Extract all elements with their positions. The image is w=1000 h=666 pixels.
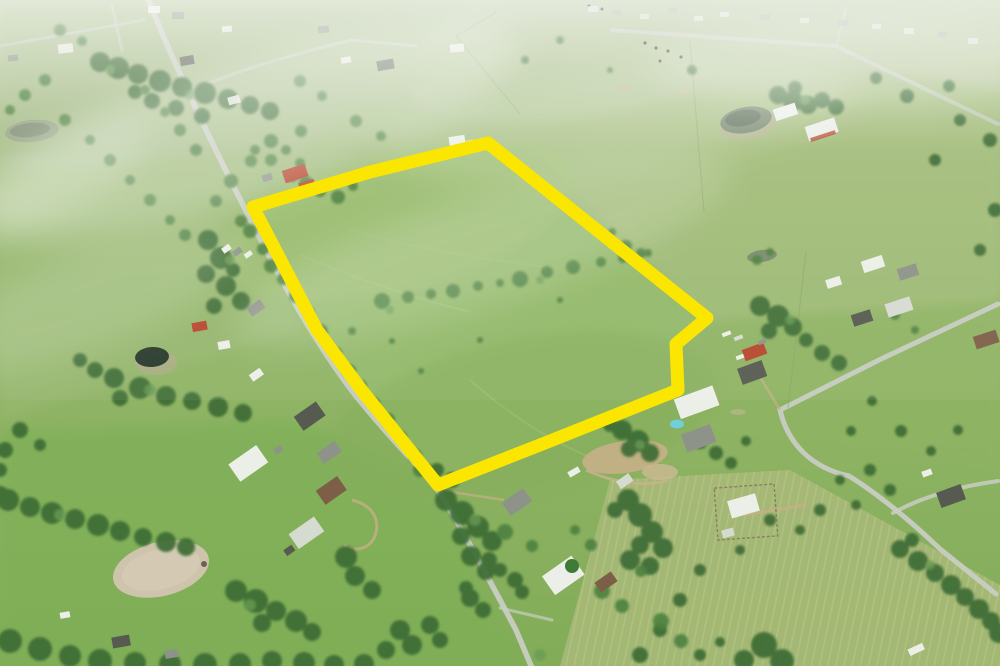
- haze-layer: [0, 0, 1000, 402]
- swimming-pool: [670, 420, 684, 429]
- aerial-photo: [0, 0, 1000, 666]
- round-green-feature: [565, 559, 579, 573]
- dirt-spot-3: [730, 409, 746, 415]
- aerial-scene: [0, 0, 1000, 666]
- arena-shed: [201, 561, 207, 567]
- dirt-patch-2: [642, 464, 678, 480]
